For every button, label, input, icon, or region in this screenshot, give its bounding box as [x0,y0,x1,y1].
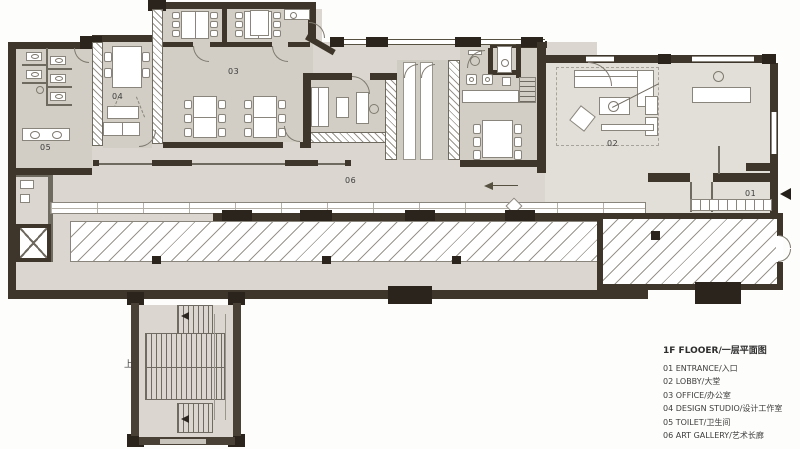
chair [104,52,112,62]
chair [278,100,286,109]
armchair [645,96,658,115]
stool [482,74,493,85]
chair [473,124,481,134]
column [366,37,388,47]
entrance-steps [690,199,772,211]
legend-item-lobby: 02 LOBBY/大堂 [663,375,800,388]
toilet-fixture [50,74,66,83]
chair [244,100,252,109]
legend: 1F FLOOER/一层平面图 01 ENTRANCE/入口 02 LOBBY/… [663,343,800,442]
fixture [20,194,30,203]
entrance-arrow-icon [780,188,791,200]
dining-table [482,120,513,158]
chair [218,100,226,109]
desk [181,11,209,39]
wall-segment [370,73,397,80]
toilet-fixture [50,92,66,101]
chair [184,128,192,137]
legend-item-gallery: 06 ART GALLERY/艺术长廊 [663,429,800,442]
room-toilet [16,48,92,170]
chair [104,68,112,78]
column [452,256,461,264]
hatched-wall [306,132,386,143]
door-arc [778,249,791,262]
toilet-fixture [26,70,42,79]
room-label-gallery: 06 [345,176,356,185]
chair [210,30,218,37]
wall-wc [488,48,493,72]
direction-arrow [492,185,518,186]
wall-segment [288,42,310,47]
chair [172,30,180,37]
chair [273,12,281,19]
mini-stair [519,77,536,103]
chair [172,21,180,28]
window [771,112,777,154]
chair [244,114,252,123]
chair [273,30,281,37]
wall-segment [163,42,193,47]
counter [284,9,310,20]
display-wall-thick [152,160,192,166]
door-arc [309,22,325,38]
chair [235,12,243,19]
wall-pantry-bottom [460,160,546,167]
wall-pantry-divider [516,44,521,78]
chair [210,12,218,19]
legend-item-office: 03 OFFICE/办公室 [663,389,800,402]
stall-partition [46,48,48,104]
wall-pantry-right [537,42,546,173]
wall-meeting-left [303,73,311,143]
appliance [502,77,511,86]
column [658,54,671,64]
window [586,56,614,62]
column [388,286,432,304]
chair [514,124,522,134]
chair [514,150,522,160]
wall-office-top [150,2,315,9]
stall-partition [22,82,48,84]
bench [601,124,654,131]
hatched-wall [152,9,163,144]
desk [253,96,277,138]
chair [184,114,192,123]
sink-counter [22,128,70,141]
room-label-studio: 04 [112,92,123,101]
wall-outer-bottom [8,290,648,299]
toilet-fixture [50,56,66,65]
stair-guide [214,314,226,420]
stair-wall [233,303,241,436]
floor-plan-canvas: 03 04 05 06 02 01 上 1F FLOOER/一层平面图 01 E… [0,0,800,449]
ramp-block [597,213,783,290]
cabinet [107,106,139,119]
stall-partition [46,86,72,88]
chair [184,100,192,109]
toilet-fixture [26,52,42,61]
desk [193,96,217,138]
stall-partition [22,64,48,66]
chair [244,128,252,137]
stair-landing [160,439,206,444]
stair-arrow-icon [181,415,189,423]
window [692,56,754,62]
stair-up-label: 上 [124,357,134,370]
column [455,37,481,47]
wall-toilet-bottom [16,168,92,175]
wall-vestibule [648,173,690,182]
chair [273,21,281,28]
reception-desk [692,87,751,103]
wall-elevator-room [16,175,52,177]
legend-item-toilet: 05 TOILET/卫生间 [663,416,800,429]
room-label-lobby: 02 [607,139,618,148]
fixture [20,180,34,189]
column [762,54,776,64]
chair [235,30,243,37]
column [330,37,344,47]
cabinet [103,122,140,136]
column [152,256,161,264]
legend-title: 1F FLOOER/一层平面图 [663,343,800,356]
hatched-wall [92,42,103,146]
floor-drain-icon [36,86,44,94]
chair [369,104,379,114]
display-wall-cap [345,160,351,166]
hatched-wall [448,60,460,160]
display-wall-thick [285,160,318,166]
column [695,282,741,304]
legend-item-studio: 04 DESIGN STUDIO/设计工作室 [663,402,800,415]
room-label-toilet: 05 [40,143,51,152]
stall-partition [46,104,72,106]
direction-arrow-head-icon [484,182,493,190]
legend-item-entrance: 01 ENTRANCE/入口 [663,362,800,375]
room-label-entrance: 01 [745,189,756,198]
chair [713,71,724,82]
wall-partition-thin [718,146,720,174]
wall-segment [210,42,227,47]
wall-office-divider [222,9,227,45]
wall-office-bottom [163,142,283,148]
chair [473,150,481,160]
sofa [311,87,329,127]
appliance [497,46,512,73]
chair [218,114,226,123]
chair [473,137,481,147]
glazed-wall-top [330,39,545,45]
chair [142,52,150,62]
stair-flight-main [145,333,225,400]
chair [218,128,226,137]
bar-counter [462,90,519,103]
room-label-office: 03 [228,67,239,76]
cabinet [250,10,269,36]
elevator [16,224,51,262]
wall-entrance-stub [746,163,773,171]
meeting-table [112,46,142,88]
chair [210,21,218,28]
wall-meeting-top [311,73,352,80]
chair [172,12,180,19]
chair [142,68,150,78]
door-arc [778,235,791,248]
chair [235,21,243,28]
display-wall-cap [93,160,99,166]
wall-segment [227,42,272,47]
desk [356,92,369,124]
stall-partition [46,68,72,70]
coffee-table [336,97,349,118]
stair-arrow-icon [181,312,189,320]
stool [466,74,477,85]
wall-outer-left [8,42,16,298]
wall-vestibule [713,173,775,182]
hatched-wall [385,73,397,160]
chair [278,114,286,123]
column [322,256,331,264]
chair [514,137,522,147]
